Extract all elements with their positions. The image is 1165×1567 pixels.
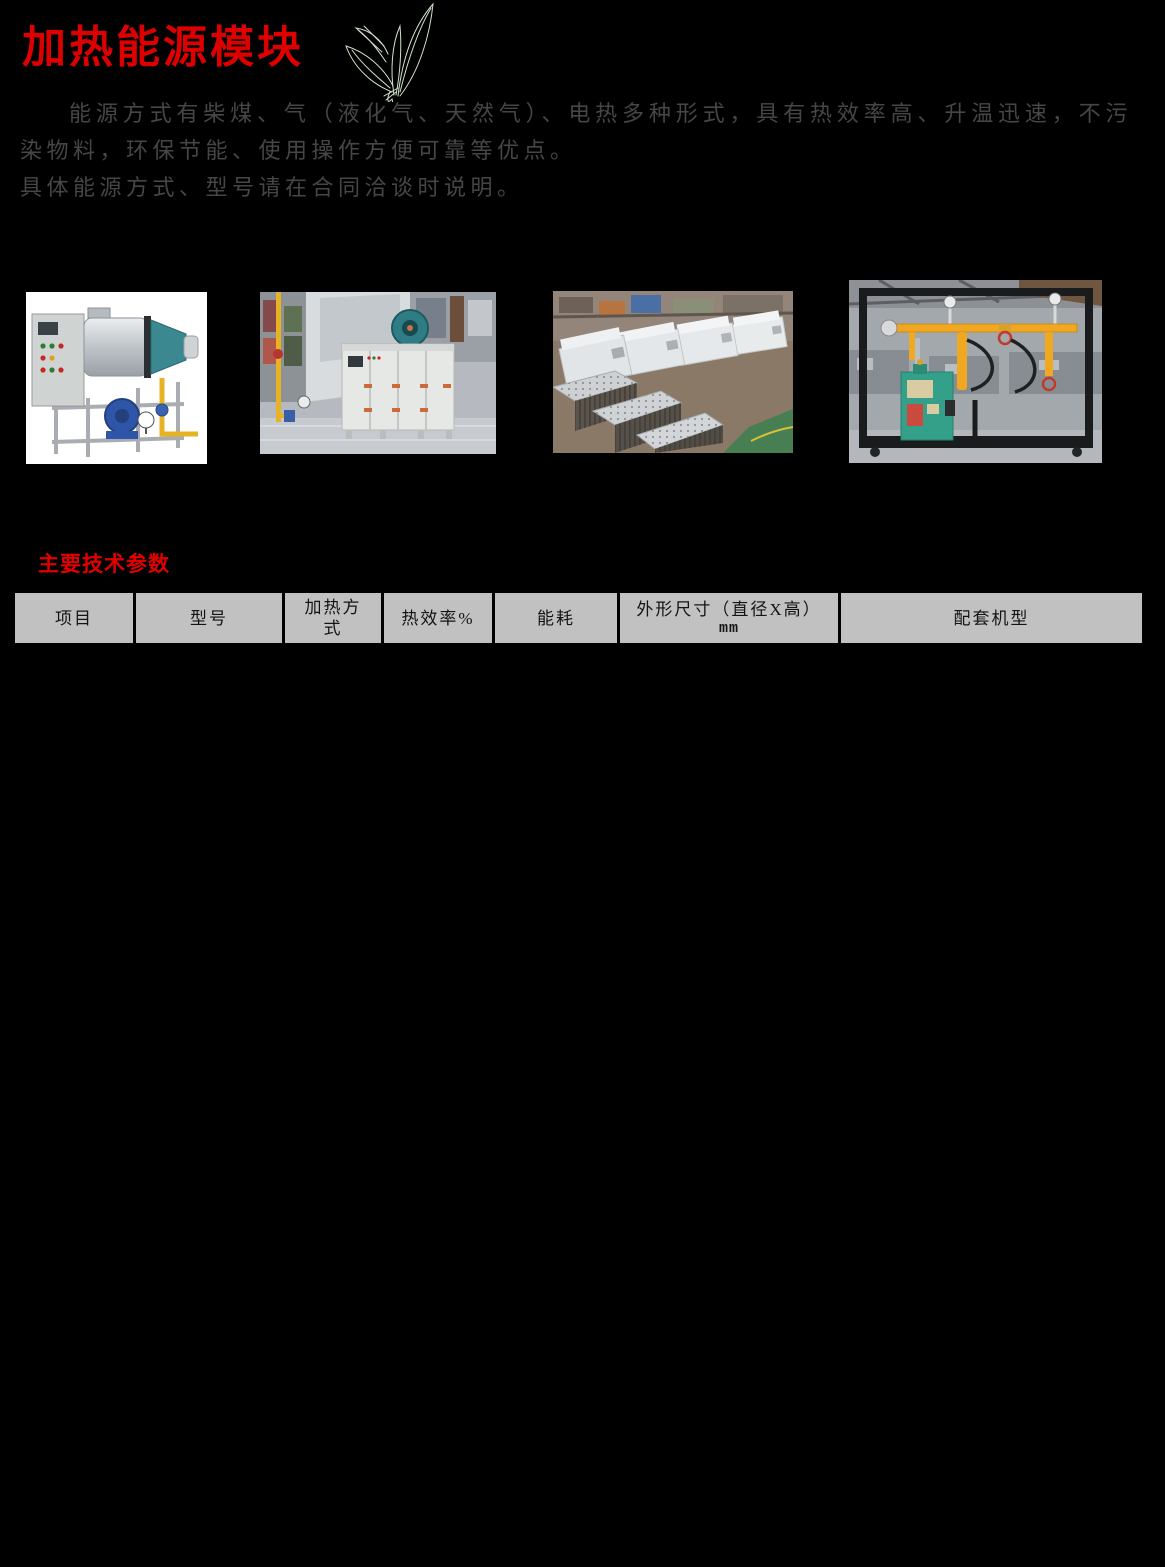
photo-heater-banks: [553, 291, 793, 453]
heater-banks-illustration: [553, 291, 793, 453]
table-header-energy-consumption: 能耗: [495, 593, 617, 643]
table-header-item: 项目: [15, 593, 133, 643]
cabinet-machine-illustration: [260, 292, 496, 454]
tea-leaf-icon: [336, 0, 440, 102]
photo-gas-skid: [849, 280, 1102, 463]
table-header-dimensions: 外形尺寸（直径X高） mm: [620, 593, 838, 643]
table-header-model: 型号: [136, 593, 282, 643]
table-header-matching-machine-label: 配套机型: [954, 608, 1030, 629]
table-header-dimensions-unit: mm: [719, 620, 739, 637]
table-header-model-label: 型号: [190, 608, 228, 629]
table-header-energy-consumption-label: 能耗: [537, 608, 575, 629]
intro-paragraph-1: 能源方式有柴煤、气（液化气、天然气）、电热多种形式，具有热效率高、升温迅速，不污…: [20, 95, 1132, 169]
table-header-matching-machine: 配套机型: [841, 593, 1142, 643]
photo-cabinet-machine: [260, 292, 496, 454]
table-header-dimensions-label: 外形尺寸（直径X高）: [636, 599, 821, 620]
table-header-item-label: 项目: [55, 608, 93, 629]
table-header-thermal-efficiency-label: 热效率%: [401, 608, 474, 629]
intro-paragraph-2: 具体能源方式、型号请在合同洽谈时说明。: [20, 169, 1132, 206]
photo-burner-unit: [26, 292, 207, 464]
table-header-heating-method-label: 加热方式: [300, 597, 366, 639]
catalog-page: 加热能源模块 能源方式有柴煤、气（液化气、天然气）、电热多种形式，具有热效率高、…: [0, 0, 1165, 1567]
gas-skid-illustration: [849, 280, 1102, 463]
burner-unit-illustration: [26, 292, 207, 464]
table-header-heating-method: 加热方式: [285, 593, 381, 643]
table-header-thermal-efficiency: 热效率%: [384, 593, 492, 643]
intro-text: 能源方式有柴煤、气（液化气、天然气）、电热多种形式，具有热效率高、升温迅速，不污…: [20, 95, 1132, 206]
page-title: 加热能源模块: [22, 22, 304, 74]
params-section-heading: 主要技术参数: [38, 551, 170, 578]
params-table-header-row: 项目 型号 加热方式 热效率% 能耗 外形尺寸（直径X高） mm 配套机型: [15, 593, 1142, 643]
